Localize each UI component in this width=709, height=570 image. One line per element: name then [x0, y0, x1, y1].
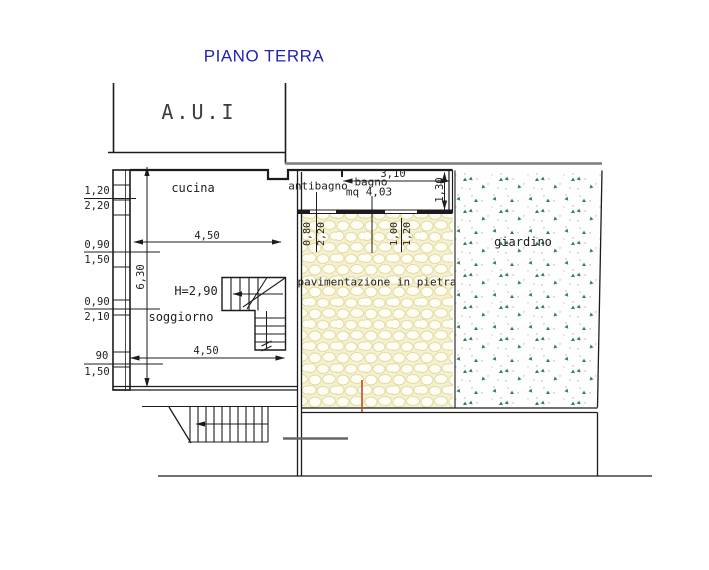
dim-room-depth: 6,30	[136, 264, 147, 289]
room-area-bagno: mq 4,03	[346, 187, 392, 198]
dim-left-2-top: 0,90	[84, 240, 109, 251]
room-label-cucina: cucina	[171, 182, 214, 194]
room-label-soggiorno: soggiorno	[148, 311, 213, 323]
dim-opening-2-width: 1,00	[390, 222, 400, 246]
room-label-giardino: giardino	[494, 236, 552, 248]
internal-stair	[222, 278, 286, 352]
dim-bagno-width: 3,10	[380, 169, 405, 180]
dim-opening-1-height: 2,20	[317, 222, 327, 246]
garden-area	[455, 171, 602, 408]
dim-left-1-bottom: 2,20	[84, 201, 109, 212]
paving-label: pavimentazione in pietra	[298, 277, 457, 288]
dim-left-3-top: 0,90	[84, 297, 109, 308]
external-stair	[169, 407, 268, 444]
dim-bagno-depth: 1,30	[435, 177, 446, 202]
dim-left-2-bottom: 1,50	[84, 255, 109, 266]
dim-left-4-top: 90	[96, 351, 109, 362]
floor-plan-page: PIANO TERRA A.U.I cucina antibagno bagno…	[0, 0, 709, 570]
room-label-antibagno: antibagno	[288, 181, 348, 192]
page-title: PIANO TERRA	[204, 48, 324, 65]
dim-room-width-lower: 4,50	[193, 346, 218, 357]
dim-opening-1-width: 0,80	[303, 222, 313, 246]
adjacent-unit-label: A.U.I	[161, 102, 236, 122]
dim-left-3-bottom: 2,10	[84, 312, 109, 323]
dim-opening-2-height: 1,20	[403, 222, 413, 246]
dim-room-width-upper: 4,50	[194, 231, 219, 242]
dim-left-4-bottom: 1,50	[84, 367, 109, 378]
dim-left-1-top: 1,20	[84, 186, 109, 197]
ceiling-height-note: H=2,90	[174, 285, 217, 297]
